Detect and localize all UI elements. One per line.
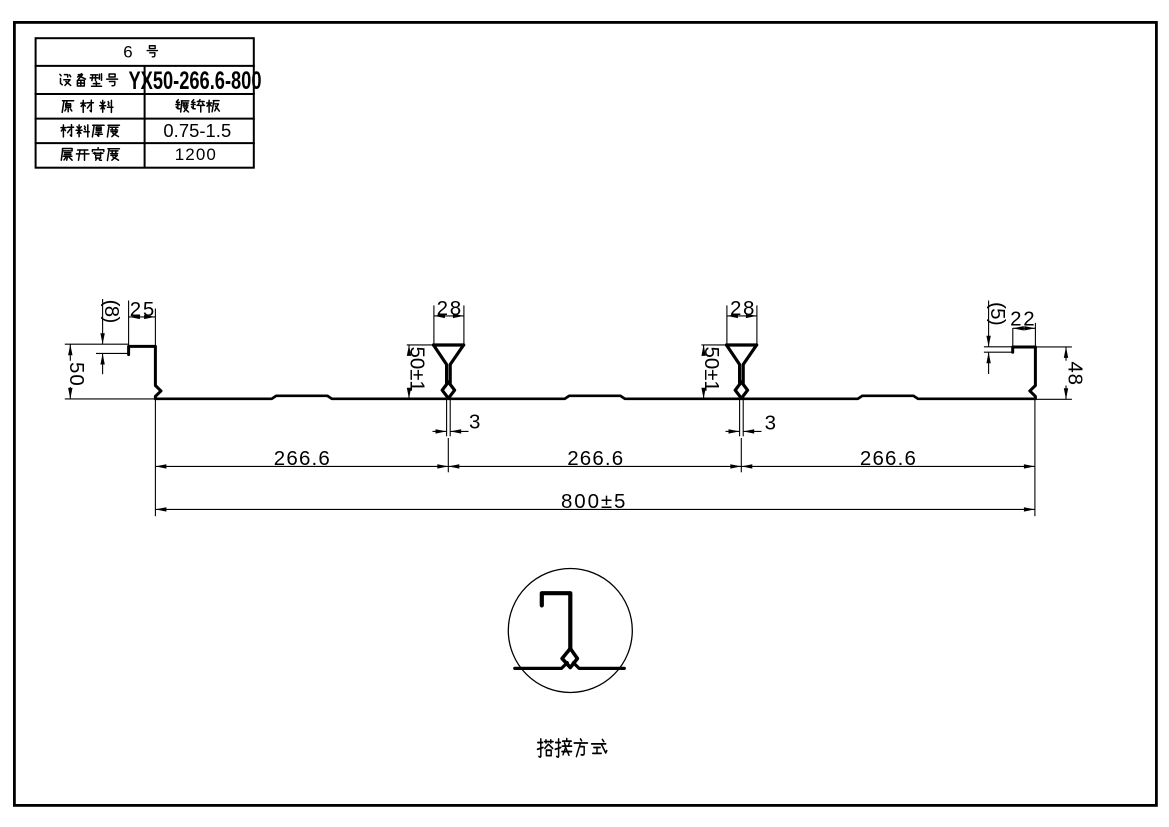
svg-text:266.6: 266.6 [274,447,330,470]
svg-text:266.6: 266.6 [860,447,916,470]
svg-text:(5): (5) [986,302,1009,326]
svg-text:22: 22 [1010,308,1035,331]
svg-text:1200: 1200 [175,145,216,164]
svg-text:6: 6 [123,42,132,61]
svg-text:800±5: 800±5 [561,490,625,513]
svg-text:0.75-1.5: 0.75-1.5 [163,120,231,141]
svg-text:50: 50 [65,362,88,386]
svg-text:YX50-266.6-800: YX50-266.6-800 [129,67,262,95]
svg-text:50±1: 50±1 [406,347,429,392]
svg-text:50±1: 50±1 [700,347,723,392]
svg-text:266.6: 266.6 [567,447,623,470]
svg-text:3: 3 [469,411,480,434]
svg-text:25: 25 [130,298,155,321]
svg-text:28: 28 [437,297,462,320]
svg-text:(8): (8) [100,300,123,324]
svg-text:28: 28 [730,297,755,320]
svg-text:48: 48 [1064,361,1087,385]
svg-text:3: 3 [765,412,776,435]
